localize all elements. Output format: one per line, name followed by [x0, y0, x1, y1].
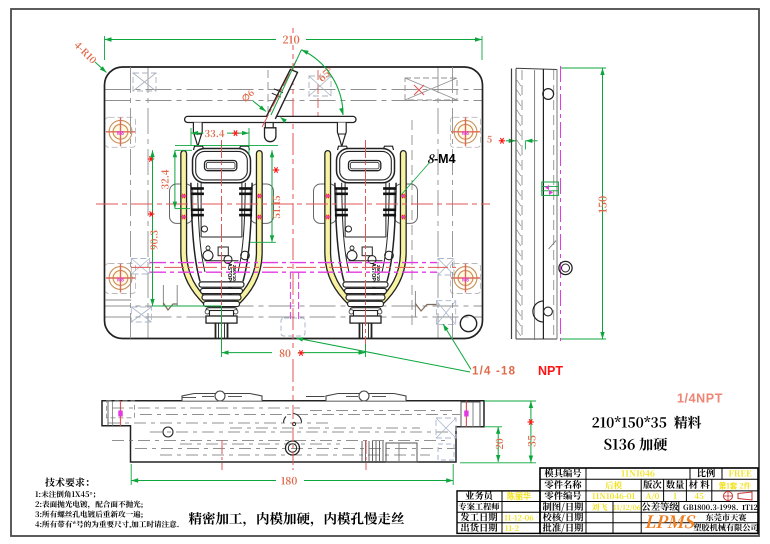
svg-text:版次: 版次: [643, 477, 662, 491]
svg-text:80: 80: [279, 345, 291, 360]
svg-text:210*150*35 精料: 210*150*35 精料: [592, 412, 702, 432]
svg-text:11-2: 11-2: [505, 523, 520, 534]
svg-text:M8: M8: [117, 131, 124, 137]
svg-text:刘飞: 刘飞: [592, 502, 608, 513]
svg-text:M8: M8: [462, 131, 469, 137]
svg-text:33.4: 33.4: [204, 126, 224, 140]
svg-text:1/4 -18: 1/4 -18: [472, 366, 516, 378]
svg-text:4:所有带有*号的为重要尺寸,加工时请注意.: 4:所有带有*号的为重要尺寸,加工时请注意.: [35, 519, 179, 530]
svg-text:出货日期: 出货日期: [460, 520, 498, 534]
svg-text:-M4: -M4: [434, 152, 456, 166]
svg-text:塑胶机械有限公司: 塑胶机械有限公司: [693, 522, 759, 533]
svg-text:11-12-06: 11-12-06: [504, 513, 534, 524]
svg-text:第1套 2件: 第1套 2件: [719, 481, 752, 492]
svg-text:批准/日期: 批准/日期: [543, 520, 585, 534]
svg-text:后模: 后模: [605, 480, 623, 492]
svg-text:GB1800.3-1998. IT12: GB1800.3-1998. IT12: [683, 503, 758, 513]
svg-text:51.15: 51.15: [269, 195, 283, 219]
svg-text:技术要求：: 技术要求：: [45, 474, 95, 489]
svg-text:5: 5: [487, 133, 492, 146]
svg-text:陈丽华: 陈丽华: [507, 491, 531, 502]
svg-text:45: 45: [694, 491, 704, 502]
svg-text:32.4: 32.4: [158, 169, 172, 189]
svg-text:业务员: 业务员: [465, 488, 495, 502]
svg-text:S136 加硬: S136 加硬: [604, 435, 668, 455]
svg-text:数量: 数量: [666, 477, 685, 491]
svg-text:材 料: 材 料: [689, 477, 711, 491]
svg-text:180: 180: [281, 473, 298, 488]
svg-text:20: 20: [492, 438, 506, 450]
svg-text:11N1046-01: 11N1046-01: [592, 491, 636, 502]
svg-text:150: 150: [596, 196, 611, 213]
svg-text:精密加工，内模加硬，内模孔慢走丝: 精密加工，内模加硬，内模孔慢走丝: [189, 508, 405, 528]
svg-text:11/12/06: 11/12/06: [613, 503, 641, 513]
svg-text:210: 210: [282, 32, 299, 47]
svg-text:M8: M8: [117, 277, 124, 283]
svg-text:90.3: 90.3: [147, 230, 161, 250]
svg-text:FREE: FREE: [728, 468, 752, 480]
svg-text:LPMS: LPMS: [644, 508, 695, 533]
svg-text:M8: M8: [462, 277, 469, 283]
svg-text:NPT: NPT: [538, 364, 563, 378]
svg-text:35: 35: [524, 435, 539, 447]
svg-text:1/4NPT: 1/4NPT: [677, 392, 723, 406]
